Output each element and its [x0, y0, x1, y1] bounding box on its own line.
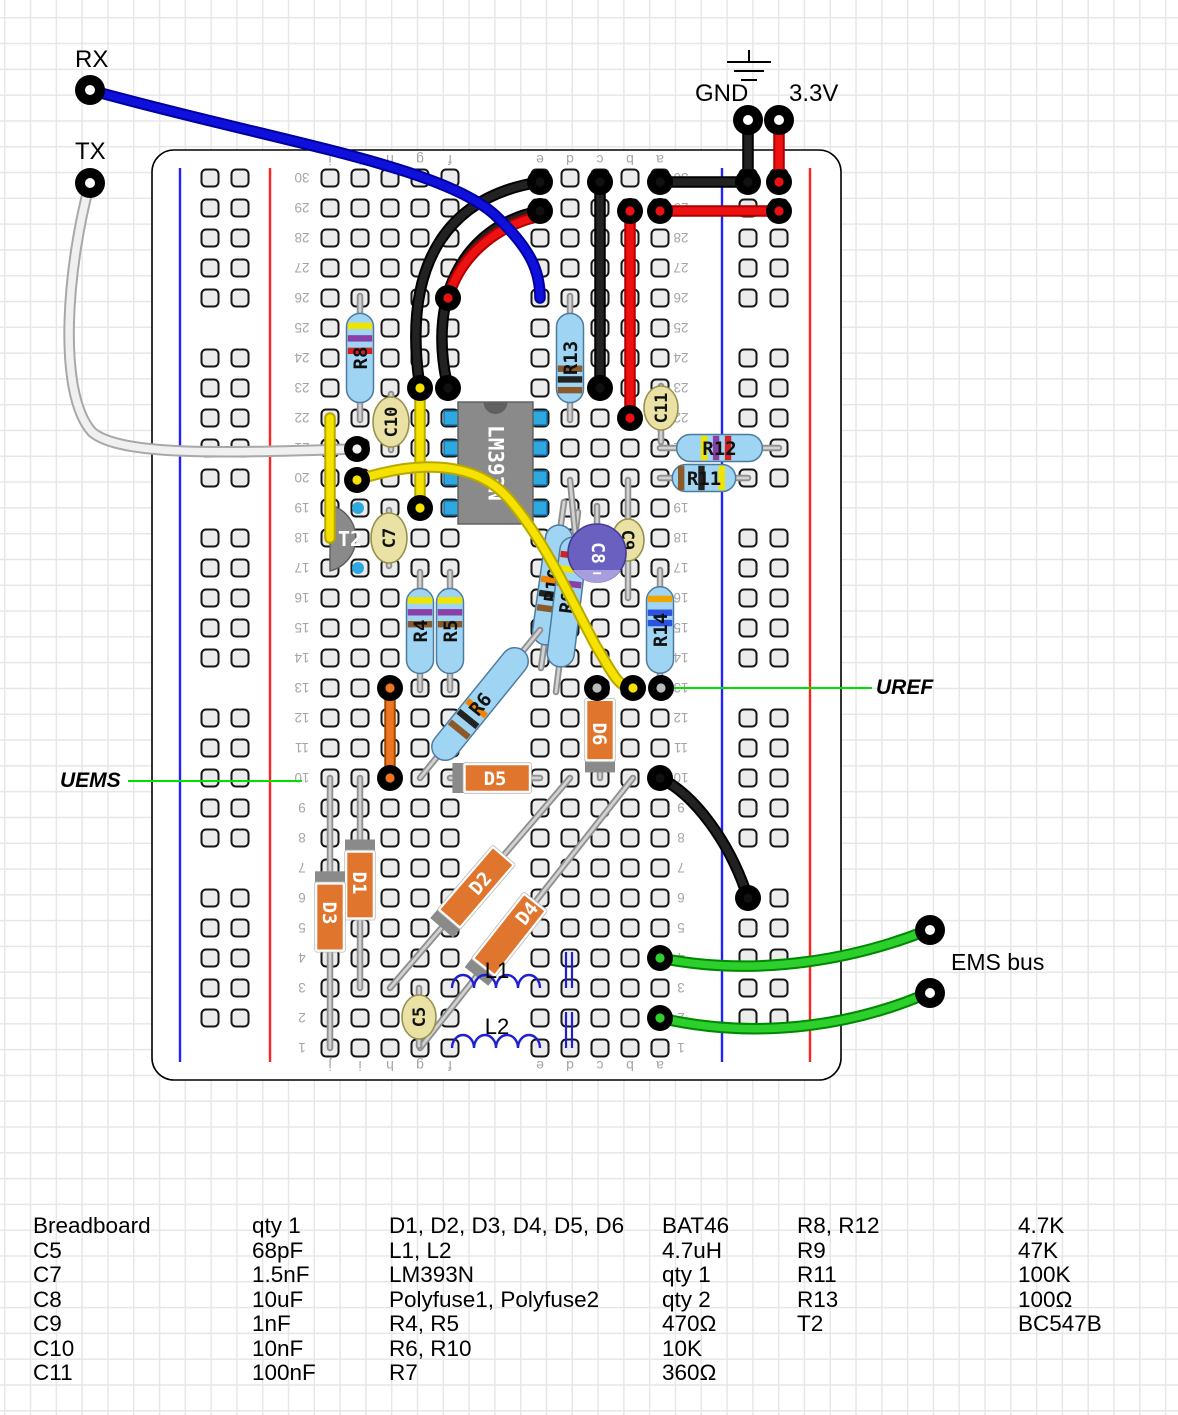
parts-list-item: R9	[797, 1239, 880, 1264]
breadboard-hole	[592, 890, 609, 907]
wire-endpoint[interactable]	[647, 1005, 673, 1031]
column-letter: b	[626, 152, 634, 168]
row-number: 27	[294, 260, 309, 275]
row-number: 4	[298, 950, 306, 965]
parts-list-column-3: D1, D2, D3, D4, D5, D6L1, L2LM393NPolyfu…	[389, 1214, 624, 1386]
breadboard-hole	[592, 860, 609, 877]
breadboard-hole	[622, 710, 639, 727]
breadboard-hole	[322, 710, 339, 727]
breadboard-hole	[202, 1010, 219, 1027]
breadboard-hole	[652, 980, 669, 997]
parts-list-item: R6, R10	[389, 1337, 624, 1362]
breadboard-hole	[652, 230, 669, 247]
wire-endpoint[interactable]	[617, 405, 643, 431]
svg-text:C8: C8	[587, 542, 608, 564]
breadboard-hole	[232, 710, 249, 727]
breadboard-hole	[352, 200, 369, 217]
33v-label: 3.3V	[789, 80, 838, 108]
breadboard-hole	[232, 230, 249, 247]
breadboard-hole	[412, 800, 429, 817]
breadboard-hole	[592, 440, 609, 457]
svg-text:R14: R14	[650, 613, 672, 647]
breadboard-hole	[740, 410, 757, 427]
wire-endpoint[interactable]	[648, 675, 674, 701]
breadboard-hole	[232, 470, 249, 487]
row-number: 6	[677, 890, 685, 905]
breadboard-hole	[652, 350, 669, 367]
breadboard-hole	[352, 680, 369, 697]
breadboard-hole	[202, 290, 219, 307]
breadboard-hole	[771, 710, 788, 727]
breadboard-hole	[202, 560, 219, 577]
parts-list-column-6: 4.7K47K100K100ΩBC547B	[1018, 1214, 1102, 1337]
wire-endpoint[interactable]	[617, 198, 643, 224]
breadboard-hole	[622, 890, 639, 907]
parts-list-item: Polyfuse1, Polyfuse2	[389, 1288, 624, 1313]
breadboard-hole	[202, 890, 219, 907]
parts-list-item: 100nF	[252, 1361, 316, 1386]
wire-endpoint[interactable]	[647, 945, 673, 971]
row-number: 13	[294, 680, 309, 695]
breadboard-hole	[442, 530, 459, 547]
breadboard-hole	[562, 890, 579, 907]
parts-list-item: qty 1	[252, 1214, 316, 1239]
pin-ems-1[interactable]	[915, 915, 945, 945]
ground-symbol-icon	[727, 50, 771, 80]
parts-list-item: C5	[33, 1239, 151, 1264]
row-number: 23	[673, 380, 688, 395]
breadboard-hole	[232, 920, 249, 937]
wire-endpoint[interactable]	[766, 198, 792, 224]
row-number: 27	[673, 260, 688, 275]
breadboard-hole	[592, 590, 609, 607]
breadboard-hole	[322, 680, 339, 697]
wire-endpoint[interactable]	[377, 675, 403, 701]
breadboard-hole	[622, 920, 639, 937]
wire-endpoint[interactable]	[527, 198, 553, 224]
breadboard-hole	[532, 710, 549, 727]
breadboard-hole	[352, 650, 369, 667]
column-letter: e	[536, 1058, 544, 1074]
breadboard-hole	[771, 890, 788, 907]
breadboard-hole	[382, 800, 399, 817]
breadboard-hole	[352, 590, 369, 607]
wire-endpoint[interactable]	[620, 675, 646, 701]
breadboard-hole	[622, 740, 639, 757]
breadboard-hole	[562, 920, 579, 937]
breadboard-hole	[232, 380, 249, 397]
breadboard-hole	[740, 800, 757, 817]
row-number: 24	[294, 350, 310, 365]
row-number: 6	[298, 890, 306, 905]
breadboard-hole	[562, 230, 579, 247]
breadboard-hole	[232, 200, 249, 217]
breadboard-hole	[771, 620, 788, 637]
breadboard-hole	[202, 590, 219, 607]
row-number: 10	[294, 770, 309, 785]
breadboard-hole	[562, 980, 579, 997]
breadboard-hole	[771, 770, 788, 787]
row-number: 28	[294, 230, 309, 245]
wire-endpoint[interactable]	[435, 375, 461, 401]
page: { "annotations": { "rx": "RX", "tx": "TX…	[0, 0, 1178, 1415]
parts-list-item: Breadboard	[33, 1214, 151, 1239]
wire-endpoint[interactable]	[407, 495, 433, 521]
breadboard-hole	[562, 950, 579, 967]
row-number: 8	[677, 830, 685, 845]
breadboard-hole	[740, 230, 757, 247]
wire-endpoint[interactable]	[647, 765, 673, 791]
ic-LM393N[interactable]: LM393N	[444, 402, 547, 524]
row-number: 11	[674, 740, 688, 755]
wire-endpoint[interactable]	[407, 375, 433, 401]
wire-endpoint[interactable]	[647, 198, 673, 224]
parts-list-item: R13	[797, 1288, 880, 1313]
breadboard-hole	[740, 980, 757, 997]
breadboard-hole	[232, 620, 249, 637]
svg-text:D5: D5	[484, 768, 507, 790]
breadboard-hole	[412, 740, 429, 757]
breadboard-hole	[622, 620, 639, 637]
pin-rx[interactable]	[75, 75, 105, 105]
breadboard-hole	[740, 740, 757, 757]
diode-D6[interactable]: D6	[585, 690, 616, 778]
breadboard-hole	[532, 830, 549, 847]
column-letter: d	[566, 1058, 574, 1074]
breadboard-hole	[652, 260, 669, 277]
breadboard-hole	[232, 350, 249, 367]
breadboard-hole	[232, 980, 249, 997]
breadboard-hole	[771, 800, 788, 817]
pin-tx[interactable]	[75, 168, 105, 198]
column-letter: i	[358, 1058, 361, 1074]
column-letter: e	[536, 152, 544, 168]
row-number: 25	[673, 320, 688, 335]
breadboard-hole	[622, 170, 639, 187]
breadboard-hole	[322, 620, 339, 637]
breadboard-hole	[352, 1010, 369, 1027]
breadboard-hole	[622, 1040, 639, 1057]
row-number: 5	[298, 920, 306, 935]
breadboard-hole	[652, 500, 669, 517]
breadboard-hole	[592, 950, 609, 967]
breadboard-hole	[412, 230, 429, 247]
breadboard-hole	[232, 260, 249, 277]
breadboard-hole	[740, 920, 757, 937]
breadboard-hole	[442, 860, 459, 877]
parts-list-item: C9	[33, 1312, 151, 1337]
breadboard-hole	[322, 230, 339, 247]
breadboard-hole	[202, 200, 219, 217]
breadboard-hole	[202, 620, 219, 637]
svg-text:L1: L1	[485, 958, 509, 983]
column-letter: g	[416, 152, 424, 168]
wire-endpoint[interactable]	[735, 885, 761, 911]
column-letter: d	[566, 152, 574, 168]
breadboard-hole	[202, 650, 219, 667]
breadboard-hole	[382, 650, 399, 667]
breadboard-hole	[442, 830, 459, 847]
breadboard-hole	[412, 200, 429, 217]
row-number: 26	[294, 290, 309, 305]
wire-endpoint[interactable]	[766, 169, 792, 195]
breadboard-hole	[771, 980, 788, 997]
rx-label: RX	[75, 46, 108, 74]
row-number: 29	[294, 200, 309, 215]
column-letter: j	[328, 1058, 332, 1074]
wire-endpoint[interactable]	[587, 375, 613, 401]
row-number: 14	[294, 650, 310, 665]
row-number: 20	[294, 470, 309, 485]
row-number: 28	[673, 230, 688, 245]
breadboard-hole	[592, 410, 609, 427]
parts-list-item: BC547B	[1018, 1312, 1102, 1337]
breadboard-hole	[562, 1010, 579, 1027]
parts-list-item: C10	[33, 1337, 151, 1362]
svg-text:D6: D6	[588, 723, 610, 746]
breadboard-hole	[232, 650, 249, 667]
svg-text:R11: R11	[687, 468, 721, 490]
breadboard-hole	[382, 1040, 399, 1057]
wire-endpoint[interactable]	[344, 436, 370, 462]
row-number: 12	[294, 710, 309, 725]
parts-list-item: qty 1	[662, 1263, 729, 1288]
breadboard-hole	[322, 590, 339, 607]
breadboard-hole	[740, 710, 757, 727]
breadboard-hole	[322, 650, 339, 667]
breadboard-hole	[412, 860, 429, 877]
breadboard-hole	[622, 830, 639, 847]
breadboard-canvas: 1122334455667788991010111112121313141415…	[0, 0, 1178, 1415]
breadboard-hole	[740, 830, 757, 847]
breadboard-hole	[592, 1040, 609, 1057]
row-number: 15	[673, 620, 688, 635]
breadboard-hole	[232, 1010, 249, 1027]
breadboard-hole	[202, 740, 219, 757]
svg-text:−: −	[592, 564, 601, 582]
wire-endpoint[interactable]	[735, 169, 761, 195]
column-letter: g	[416, 1058, 424, 1074]
breadboard-hole	[652, 860, 669, 877]
breadboard-hole	[622, 860, 639, 877]
row-number: 1	[298, 1040, 306, 1055]
parts-list-item: C7	[33, 1263, 151, 1288]
svg-text:R8: R8	[350, 347, 372, 370]
breadboard-hole	[740, 590, 757, 607]
breadboard-hole	[740, 290, 757, 307]
breadboard-hole	[532, 860, 549, 877]
breadboard-hole	[562, 800, 579, 817]
svg-text:R4: R4	[410, 620, 432, 643]
wire-endpoint[interactable]	[344, 467, 370, 493]
breadboard-hole	[382, 320, 399, 337]
svg-text:R13: R13	[560, 341, 582, 375]
breadboard-hole	[652, 710, 669, 727]
breadboard-hole	[562, 680, 579, 697]
breadboard-hole	[322, 260, 339, 277]
breadboard-hole	[352, 710, 369, 727]
breadboard-hole	[771, 380, 788, 397]
column-letter: b	[626, 1058, 634, 1074]
parts-list-item: R7	[389, 1361, 624, 1386]
row-number: 2	[298, 1010, 306, 1025]
breadboard-hole	[562, 440, 579, 457]
row-number: 1	[677, 1040, 685, 1055]
breadboard-hole	[771, 650, 788, 667]
parts-list-item: D1, D2, D3, D4, D5, D6	[389, 1214, 624, 1239]
breadboard-hole	[622, 800, 639, 817]
parts-list-column-2: qty 168pF1.5nF10uF1nF10nF100nF	[252, 1214, 316, 1386]
breadboard-hole	[740, 560, 757, 577]
svg-text:R5: R5	[440, 620, 462, 643]
row-number: 3	[298, 980, 306, 995]
row-number: 12	[673, 710, 688, 725]
breadboard-hole	[771, 560, 788, 577]
breadboard-hole	[562, 170, 579, 187]
breadboard-hole	[532, 350, 549, 367]
breadboard-hole	[202, 830, 219, 847]
breadboard-hole	[622, 950, 639, 967]
parts-list-item: T2	[797, 1312, 880, 1337]
row-number: 15	[294, 620, 309, 635]
breadboard-hole	[202, 260, 219, 277]
parts-list-item: L1, L2	[389, 1239, 624, 1264]
breadboard-hole	[232, 530, 249, 547]
breadboard-hole	[652, 920, 669, 937]
breadboard-hole	[232, 290, 249, 307]
parts-list-item: 10nF	[252, 1337, 316, 1362]
breadboard-hole	[771, 740, 788, 757]
breadboard-hole	[652, 830, 669, 847]
breadboard-hole	[352, 230, 369, 247]
svg-text:T2: T2	[338, 527, 362, 551]
row-number: 8	[298, 830, 306, 845]
breadboard-hole	[382, 950, 399, 967]
breadboard-hole	[232, 800, 249, 817]
parts-list-column-1: BreadboardC5C7C8C9C10C11	[33, 1214, 151, 1386]
pin-ems-2[interactable]	[915, 978, 945, 1008]
breadboard-hole	[442, 950, 459, 967]
wire-endpoint[interactable]	[587, 169, 613, 195]
breadboard-hole	[202, 980, 219, 997]
parts-list-item: BAT46	[662, 1214, 729, 1239]
breadboard-hole	[740, 650, 757, 667]
breadboard-hole	[532, 1010, 549, 1027]
row-number: 17	[294, 560, 309, 575]
uems-label: UEMS	[60, 769, 121, 793]
breadboard-hole	[532, 950, 549, 967]
breadboard-hole	[232, 410, 249, 427]
row-number: 7	[298, 860, 306, 875]
breadboard-hole	[562, 710, 579, 727]
pin-gnd[interactable]	[733, 105, 763, 135]
row-number: 24	[673, 350, 689, 365]
breadboard-hole	[202, 380, 219, 397]
svg-text:C5: C5	[410, 1007, 430, 1027]
breadboard-hole	[652, 740, 669, 757]
parts-list-item: LM393N	[389, 1263, 624, 1288]
breadboard-hole	[592, 470, 609, 487]
breadboard-hole	[771, 230, 788, 247]
svg-text:C10: C10	[382, 407, 402, 438]
breadboard-hole	[740, 350, 757, 367]
parts-list-item: 10uF	[252, 1288, 316, 1313]
parts-list-item: C8	[33, 1288, 151, 1313]
wire-endpoint[interactable]	[647, 169, 673, 195]
breadboard-hole	[532, 740, 549, 757]
row-number: 19	[294, 500, 309, 515]
breadboard-hole	[352, 620, 369, 637]
breadboard-hole	[622, 440, 639, 457]
breadboard-hole	[771, 260, 788, 277]
breadboard-hole	[382, 890, 399, 907]
parts-list-item: 470Ω	[662, 1312, 729, 1337]
breadboard-hole	[382, 860, 399, 877]
breadboard-hole	[202, 170, 219, 187]
ems-bus-label: EMS bus	[951, 949, 1044, 976]
breadboard-hole	[771, 470, 788, 487]
row-number: 3	[677, 980, 685, 995]
breadboard-hole	[652, 320, 669, 337]
column-letter: f	[448, 1058, 452, 1074]
breadboard-hole	[592, 980, 609, 997]
wire-endpoint[interactable]	[527, 169, 553, 195]
breadboard-hole	[322, 290, 339, 307]
breadboard-hole	[352, 1040, 369, 1057]
breadboard-hole	[652, 290, 669, 307]
pin-33v[interactable]	[764, 105, 794, 135]
breadboard-hole	[652, 800, 669, 817]
breadboard-hole	[771, 530, 788, 547]
breadboard-hole	[532, 320, 549, 337]
breadboard-hole	[562, 830, 579, 847]
svg-text:R12: R12	[702, 438, 736, 460]
wire-endpoint[interactable]	[435, 285, 461, 311]
column-letter: a	[656, 1058, 664, 1074]
row-number: 16	[673, 590, 688, 605]
breadboard-hole	[740, 260, 757, 277]
breadboard-hole	[592, 1010, 609, 1027]
breadboard-hole	[562, 740, 579, 757]
breadboard-hole	[352, 260, 369, 277]
wire-endpoint[interactable]	[584, 675, 610, 701]
row-number: 26	[673, 290, 688, 305]
tx-label: TX	[75, 138, 106, 166]
breadboard-hole	[202, 800, 219, 817]
breadboard-hole	[652, 530, 669, 547]
parts-list-item: R8, R12	[797, 1214, 880, 1239]
breadboard-hole	[322, 380, 339, 397]
wire-endpoint[interactable]	[377, 765, 403, 791]
parts-list-column-5: R8, R12R9R11R13T2	[797, 1214, 880, 1337]
breadboard-hole	[232, 770, 249, 787]
parts-list-item: R11	[797, 1263, 880, 1288]
breadboard-hole	[382, 920, 399, 937]
breadboard-hole	[382, 590, 399, 607]
breadboard-hole	[740, 380, 757, 397]
parts-list-item: 4.7uH	[662, 1239, 729, 1264]
column-letter: h	[386, 1058, 394, 1074]
parts-list-item: 1.5nF	[252, 1263, 316, 1288]
diode-D5[interactable]: D5	[450, 763, 540, 794]
breadboard-hole	[771, 590, 788, 607]
breadboard-hole	[771, 830, 788, 847]
row-number: 16	[294, 590, 309, 605]
parts-list-item: 47K	[1018, 1239, 1102, 1264]
breadboard-hole	[202, 470, 219, 487]
breadboard-hole	[322, 740, 339, 757]
row-number: 14	[673, 650, 689, 665]
